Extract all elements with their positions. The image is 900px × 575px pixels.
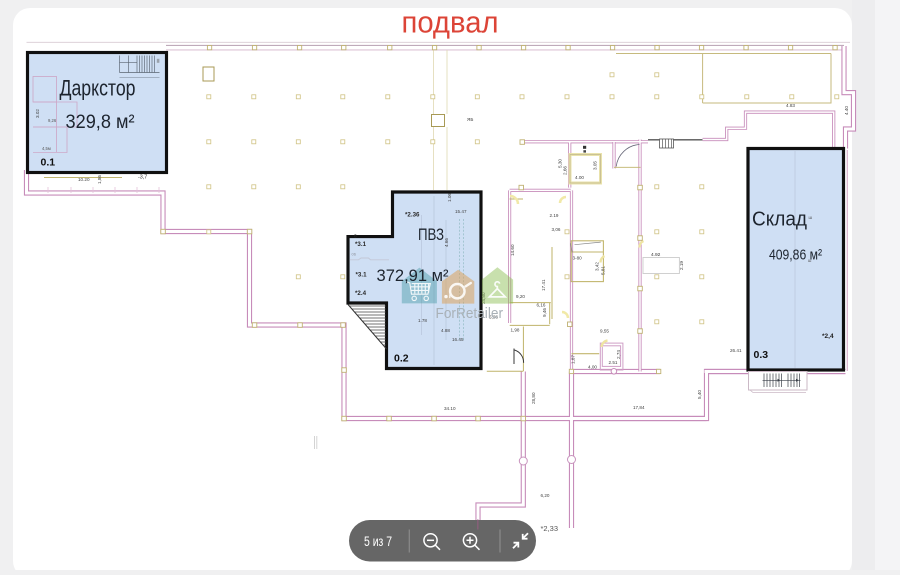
svg-text:подвал: подвал — [402, 5, 499, 40]
svg-text:1.78: 1.78 — [418, 318, 427, 323]
svg-text:4,00: 4,00 — [588, 365, 597, 370]
svg-text:*2.36: *2.36 — [405, 212, 420, 219]
svg-text:16.45: 16.45 — [452, 337, 464, 342]
svg-text:1,87: 1,87 — [571, 355, 576, 364]
svg-text:17.41: 17.41 — [541, 279, 546, 291]
svg-text:4.83: 4.83 — [786, 103, 795, 108]
svg-text:2,74: 2,74 — [616, 350, 621, 359]
svg-text:4,5м: 4,5м — [42, 146, 51, 151]
svg-text:*3.1: *3.1 — [355, 241, 367, 248]
svg-text:0.2: 0.2 — [394, 353, 409, 365]
svg-text:4.40: 4.40 — [844, 106, 849, 115]
svg-text:4.92: 4.92 — [651, 252, 661, 258]
svg-text:*2.4: *2.4 — [355, 290, 367, 297]
svg-text:4.00: 4.00 — [575, 175, 584, 180]
svg-text:1,86: 1,86 — [97, 175, 102, 184]
svg-text:9,46: 9,46 — [542, 308, 547, 317]
svg-text:14.60: 14.60 — [510, 244, 515, 256]
svg-text:3,42: 3,42 — [595, 262, 600, 271]
svg-text:329,8 м²: 329,8 м² — [66, 112, 135, 133]
svg-text:28,80: 28,80 — [531, 392, 536, 404]
svg-text:06: 06 — [352, 252, 357, 257]
svg-text:9,26: 9,26 — [48, 118, 57, 123]
svg-text:0.3: 0.3 — [754, 349, 769, 361]
svg-text:1,98: 1,98 — [511, 328, 520, 333]
svg-text:0.1: 0.1 — [41, 157, 56, 169]
svg-text:6,20: 6,20 — [541, 493, 550, 498]
svg-text:5,40: 5,40 — [697, 390, 702, 399]
svg-text:*2,33: *2,33 — [541, 524, 559, 533]
svg-text:2,66: 2,66 — [563, 166, 568, 175]
svg-text:5 из 7: 5 из 7 — [364, 534, 392, 549]
svg-text:ЯБ: ЯБ — [467, 117, 473, 122]
svg-text:2.19: 2.19 — [550, 213, 559, 218]
svg-text:3,06: 3,06 — [552, 227, 561, 232]
svg-text:4.66: 4.66 — [444, 238, 449, 247]
svg-text:26.41: 26.41 — [730, 348, 742, 353]
svg-text:ш: ш — [809, 215, 813, 220]
svg-text:1.06: 1.06 — [447, 193, 452, 202]
svg-text:4.88: 4.88 — [441, 328, 450, 333]
svg-text:*2,4: *2,4 — [822, 333, 834, 340]
svg-text:ForRetailer: ForRetailer — [436, 306, 504, 322]
svg-text:9,20: 9,20 — [516, 294, 525, 299]
svg-text:409,86 м²: 409,86 м² — [769, 247, 822, 264]
svg-text:-3,7: -3,7 — [138, 175, 147, 181]
svg-text:3-80: 3-80 — [573, 256, 583, 261]
svg-text:372,91 м²: 372,91 м² — [377, 267, 450, 285]
svg-text:9,55: 9,55 — [600, 329, 609, 334]
svg-text:8: 8 — [354, 234, 357, 240]
svg-text:34.10: 34.10 — [444, 406, 456, 411]
svg-text:Склад: Склад — [752, 208, 807, 231]
svg-text:3.02: 3.02 — [35, 109, 40, 118]
svg-text:17,84: 17,84 — [633, 405, 645, 410]
svg-text:3.05: 3.05 — [593, 161, 598, 170]
svg-text:10.20: 10.20 — [78, 177, 90, 182]
svg-text:*3.1: *3.1 — [356, 271, 368, 278]
svg-text:ПВЗ: ПВЗ — [418, 225, 444, 244]
svg-text:2.19: 2.19 — [679, 261, 684, 270]
svg-text:15.47: 15.47 — [455, 209, 467, 214]
svg-text:6,16: 6,16 — [537, 303, 546, 308]
svg-text:2.51: 2.51 — [609, 360, 618, 365]
svg-text:Даркстор: Даркстор — [60, 76, 136, 101]
svg-text:5,81: 5,81 — [601, 266, 606, 275]
